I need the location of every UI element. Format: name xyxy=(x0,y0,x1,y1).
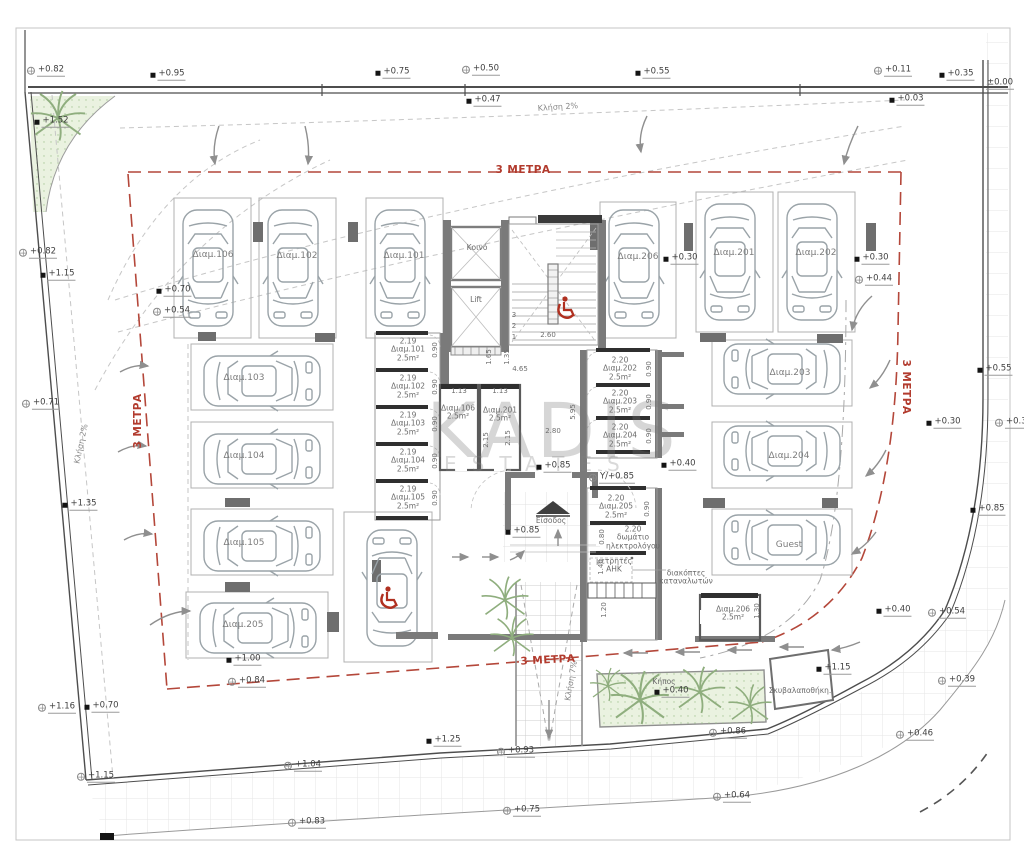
car xyxy=(724,339,840,399)
car xyxy=(200,598,316,658)
car xyxy=(724,510,840,570)
refuse-store xyxy=(770,650,833,709)
car xyxy=(204,351,320,411)
staircase xyxy=(509,224,598,345)
car xyxy=(204,429,320,489)
parking-stall xyxy=(696,192,773,332)
parking-stall xyxy=(174,198,251,338)
parking-stall xyxy=(186,592,328,658)
parking-stall xyxy=(600,202,676,338)
site-plan-canvas: KADIS ESTATES +0.82+0.95+0.75+0.50+0.47+… xyxy=(0,0,1024,867)
car xyxy=(204,516,320,576)
car xyxy=(370,210,430,326)
storage-206 xyxy=(700,593,760,640)
benchmark-marker xyxy=(100,833,114,840)
accessible-car xyxy=(362,530,422,646)
building xyxy=(375,215,833,746)
car xyxy=(263,210,323,326)
parking-stall xyxy=(778,192,855,332)
parking-stall xyxy=(259,198,336,338)
car xyxy=(604,210,664,326)
car xyxy=(724,421,840,481)
wheelchair-icon xyxy=(381,586,397,607)
car xyxy=(700,204,760,320)
car xyxy=(782,204,842,320)
watermark-subtitle: ESTATES xyxy=(444,452,635,476)
parking-stall xyxy=(366,198,443,338)
